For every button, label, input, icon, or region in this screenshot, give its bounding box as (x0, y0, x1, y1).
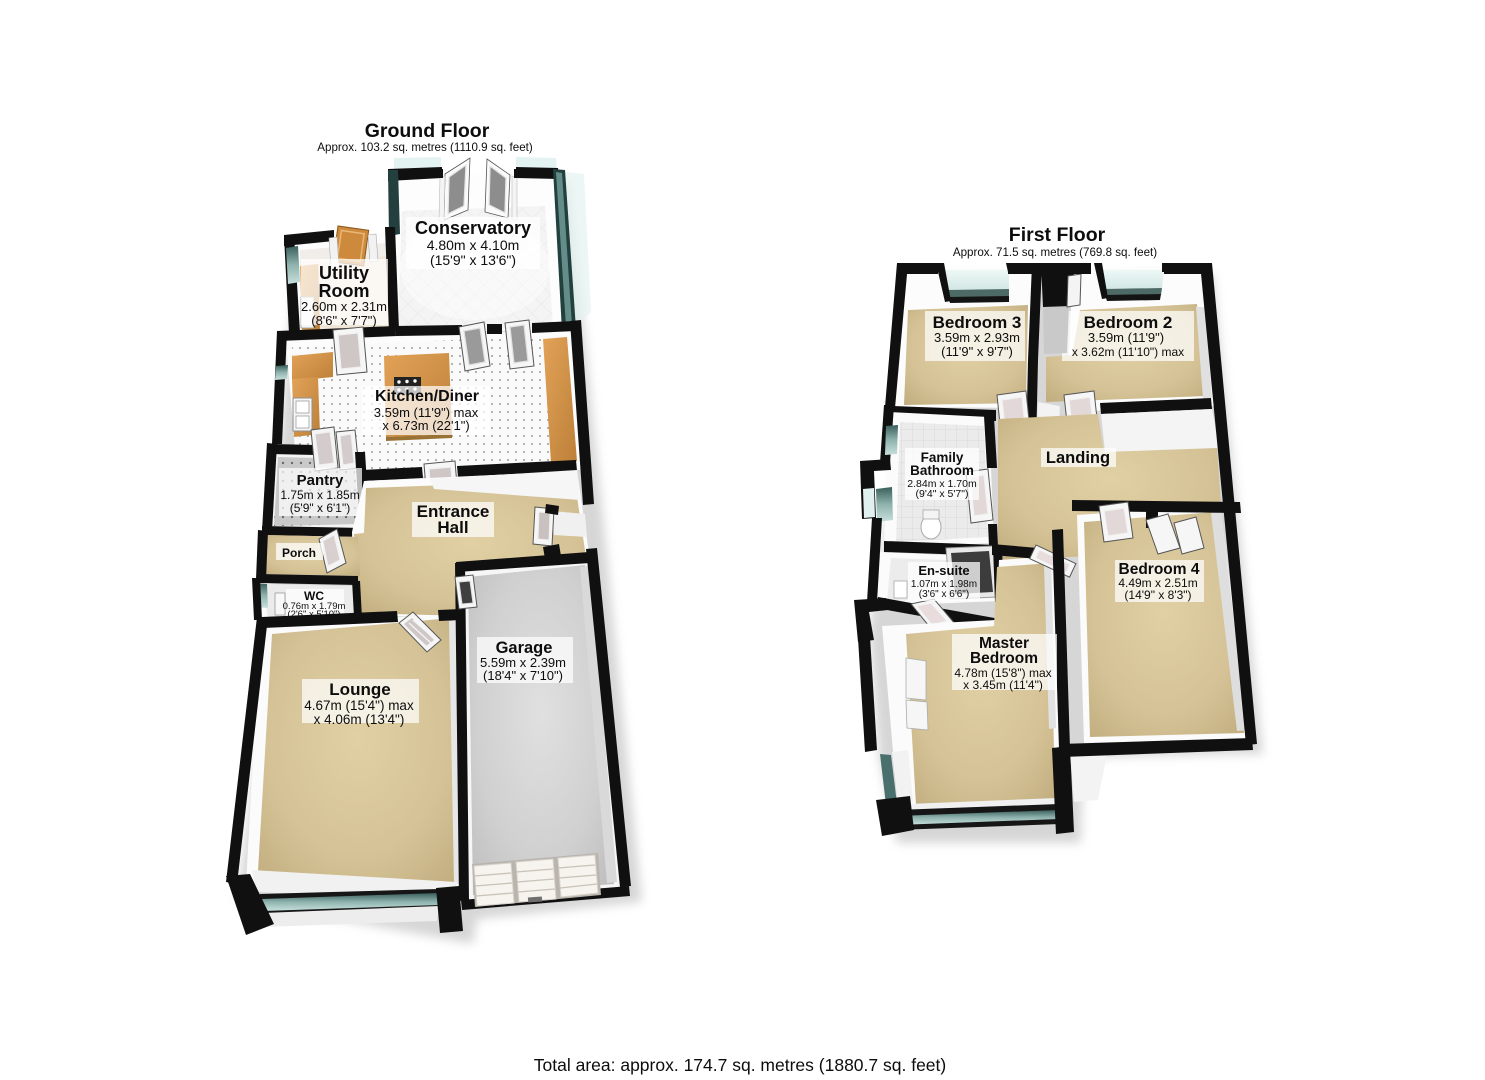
svg-text:Pantry: Pantry (297, 472, 344, 489)
svg-text:3.59m (11'9"): 3.59m (11'9") (1088, 330, 1164, 345)
svg-text:x 3.45m (11'4"): x 3.45m (11'4") (963, 678, 1043, 692)
svg-text:Ground Floor: Ground Floor (365, 120, 490, 142)
svg-text:x 4.06m (13'4"): x 4.06m (13'4") (314, 712, 405, 727)
svg-text:Landing: Landing (1046, 449, 1110, 467)
svg-text:En-suite: En-suite (918, 563, 969, 578)
svg-text:Utility: Utility (319, 263, 369, 283)
svg-text:(8'6" x 7'7"): (8'6" x 7'7") (311, 313, 377, 328)
svg-text:Approx. 71.5 sq. metres (769.8: Approx. 71.5 sq. metres (769.8 sq. feet) (953, 246, 1157, 259)
svg-text:3.59m x 2.93m: 3.59m x 2.93m (934, 330, 1020, 345)
svg-text:Bathroom: Bathroom (910, 463, 974, 478)
svg-text:(18'4" x 7'10"): (18'4" x 7'10") (483, 668, 563, 683)
svg-text:Room: Room (319, 281, 370, 301)
svg-text:(11'9" x 9'7"): (11'9" x 9'7") (941, 344, 1013, 359)
svg-text:x 3.62m (11'10") max: x 3.62m (11'10") max (1072, 345, 1184, 359)
svg-text:(3'6" x 6'6"): (3'6" x 6'6") (919, 589, 969, 600)
svg-text:Approx. 103.2 sq. metres (1110: Approx. 103.2 sq. metres (1110.9 sq. fee… (317, 141, 533, 154)
svg-text:Conservatory: Conservatory (415, 218, 531, 238)
svg-text:(5'9" x 6'1"): (5'9" x 6'1") (290, 501, 350, 515)
svg-text:Lounge: Lounge (329, 680, 390, 699)
svg-text:4.67m (15'4") max: 4.67m (15'4") max (304, 698, 414, 713)
svg-text:First Floor: First Floor (1009, 224, 1106, 246)
svg-text:1.75m x 1.85m: 1.75m x 1.85m (280, 488, 359, 502)
svg-text:Kitchen/Diner: Kitchen/Diner (375, 388, 479, 405)
svg-text:4.80m x 4.10m: 4.80m x 4.10m (427, 237, 520, 253)
svg-text:Hall: Hall (437, 518, 468, 537)
svg-text:x 6.73m (22'1"): x 6.73m (22'1") (382, 418, 469, 433)
svg-text:(15'9" x 13'6"): (15'9" x 13'6") (430, 252, 516, 268)
svg-text:Total area: approx. 174.7 sq.: Total area: approx. 174.7 sq. metres (18… (534, 1055, 946, 1075)
svg-text:Bedroom: Bedroom (970, 650, 1038, 667)
svg-text:2.60m x 2.31m: 2.60m x 2.31m (301, 299, 387, 314)
svg-text:Porch: Porch (282, 546, 316, 560)
svg-text:(9'4" x 5'7"): (9'4" x 5'7") (916, 488, 969, 500)
svg-text:(14'9" x 8'3"): (14'9" x 8'3") (1124, 588, 1191, 602)
